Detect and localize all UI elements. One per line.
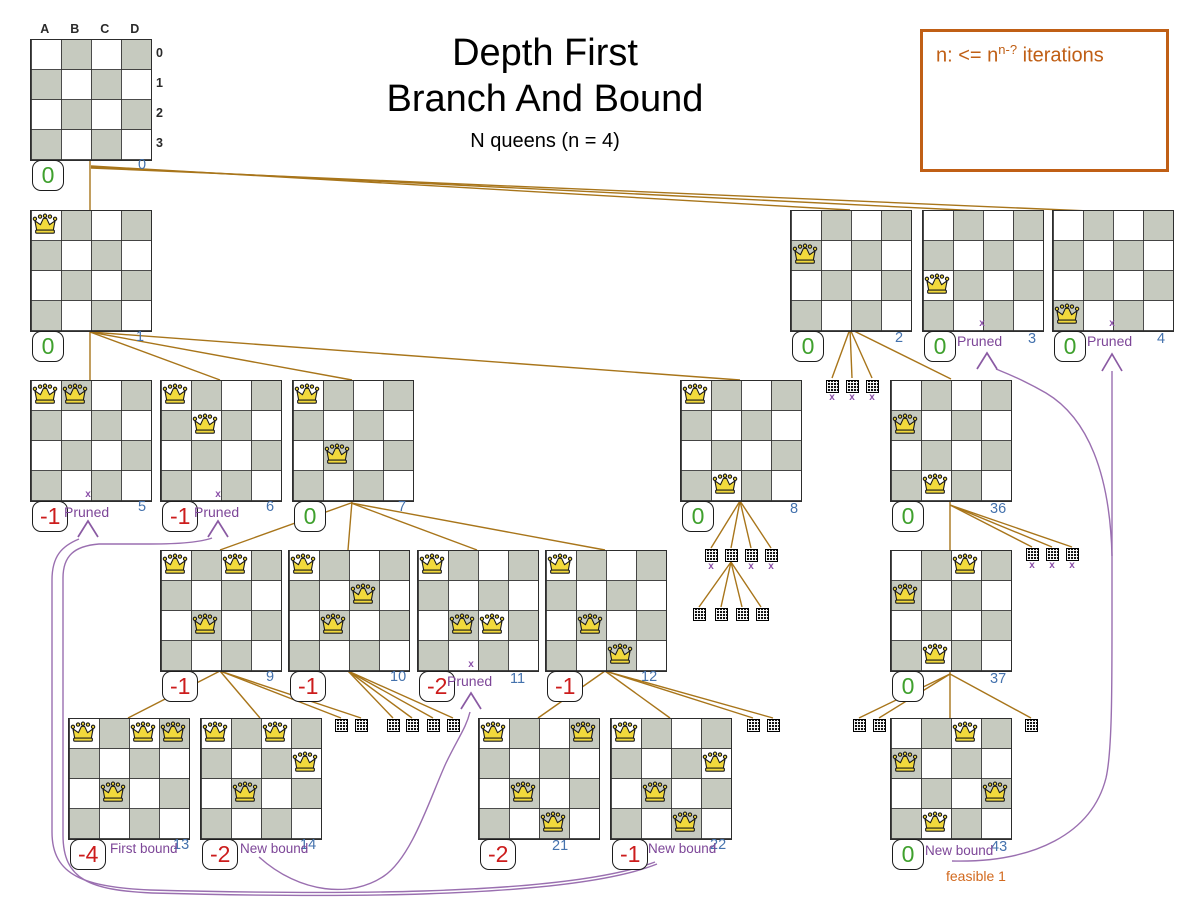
- queen-crown-glyph: [892, 583, 918, 605]
- mini-pruned-x-mark: x: [748, 561, 754, 572]
- pruned-x-mark-node-5: x: [85, 489, 91, 500]
- queen-crown-glyph: [682, 383, 708, 405]
- queen-crown-glyph: [952, 721, 978, 743]
- queen-piece: [32, 213, 58, 235]
- queen-piece: [480, 721, 506, 743]
- curve-newbound43-pruned3: [996, 369, 1112, 556]
- queen-piece: [100, 781, 126, 803]
- queen-piece: [510, 781, 536, 803]
- edge-mini-sub: [731, 562, 742, 607]
- score-badge-node-6: -1: [162, 501, 198, 532]
- bound-label-node-13: First bound: [110, 841, 178, 856]
- queen-piece: [32, 383, 58, 405]
- feasible-label-node-43: feasible 1: [946, 868, 1006, 884]
- edge-36-mini: [950, 505, 1072, 547]
- queen-piece: [922, 473, 948, 495]
- queen-crown-glyph: [192, 613, 218, 635]
- score-badge-node-3: 0: [924, 331, 956, 362]
- queen-crown-glyph: [510, 781, 536, 803]
- title-subtitle: N queens (n = 4): [245, 128, 845, 154]
- score-badge-node-8: 0: [682, 501, 714, 532]
- mini-board-icon: [747, 719, 760, 732]
- queen-piece: [192, 613, 218, 635]
- title-line-2: Branch And Bound: [245, 76, 845, 122]
- queen-crown-glyph: [612, 721, 638, 743]
- queen-piece: [672, 811, 698, 833]
- node-number-4: 4: [1157, 331, 1165, 347]
- edge-8-mini: [740, 501, 771, 548]
- queen-piece: [162, 553, 188, 575]
- row-label-1: 1: [156, 76, 163, 90]
- queen-crown-glyph: [32, 383, 58, 405]
- queen-piece: [547, 553, 573, 575]
- mini-pruned-x-mark: x: [849, 392, 855, 403]
- queen-crown-glyph: [892, 413, 918, 435]
- score-badge-node-21: -2: [480, 839, 516, 870]
- edge-10-mini: [348, 671, 393, 718]
- bound-label-node-14: New bound: [240, 841, 308, 856]
- queen-crown-glyph: [480, 721, 506, 743]
- queen-piece: [702, 751, 728, 773]
- node-number-8: 8: [790, 501, 798, 517]
- mini-board-icon: [853, 719, 866, 732]
- queen-piece: [350, 583, 376, 605]
- queen-crown-glyph: [292, 751, 318, 773]
- node-number-43: 43: [991, 839, 1007, 855]
- queen-crown-glyph: [892, 751, 918, 773]
- queen-piece: [290, 553, 316, 575]
- score-badge-node-22: -1: [612, 839, 648, 870]
- chessboard-node-36: [890, 380, 1012, 502]
- queen-crown-glyph: [922, 811, 948, 833]
- edge-1-7: [90, 332, 352, 380]
- row-label-0: 0: [156, 46, 163, 60]
- queen-piece: [540, 811, 566, 833]
- queen-piece: [952, 553, 978, 575]
- queen-piece: [202, 721, 228, 743]
- chessboard-node-0: [30, 39, 152, 161]
- queen-crown-glyph: [952, 553, 978, 575]
- row-label-3: 3: [156, 136, 163, 150]
- queen-crown-glyph: [130, 721, 156, 743]
- row-label-2: 2: [156, 106, 163, 120]
- queen-piece: [70, 721, 96, 743]
- queen-piece: [612, 721, 638, 743]
- queen-crown-glyph: [294, 383, 320, 405]
- edge-7-9: [220, 503, 351, 550]
- node-number-37: 37: [990, 671, 1006, 687]
- chessboard-node-3: [922, 210, 1044, 332]
- pruned-x-mark-node-3: x: [979, 318, 985, 329]
- score-badge-node-7: 0: [294, 501, 326, 532]
- node-number-10: 10: [390, 669, 406, 685]
- edge-12-mini: [605, 671, 773, 718]
- score-badge-node-1: 0: [32, 331, 64, 362]
- queen-crown-glyph: [922, 643, 948, 665]
- edge-mini-sub: [731, 562, 761, 607]
- queen-piece: [1054, 303, 1080, 325]
- queen-crown-glyph: [70, 721, 96, 743]
- score-badge-node-9: -1: [162, 671, 198, 702]
- arrowhead-pruned3: [977, 353, 997, 369]
- mini-board-icon: [756, 608, 769, 621]
- mini-board-icon: [387, 719, 400, 732]
- queen-crown-glyph: [232, 781, 258, 803]
- arrowhead-pruned11: [461, 693, 481, 709]
- queen-piece: [292, 751, 318, 773]
- node-number-5: 5: [138, 499, 146, 515]
- mini-pruned-x-mark: x: [708, 561, 714, 572]
- edge-12-22: [605, 671, 670, 718]
- queen-piece: [577, 613, 603, 635]
- column-label-D: D: [130, 22, 140, 36]
- edge-7-12: [351, 503, 605, 550]
- pruned-label-node-6: Pruned: [194, 504, 239, 520]
- mini-pruned-x-mark: x: [869, 392, 875, 403]
- queen-crown-glyph: [290, 553, 316, 575]
- queen-crown-glyph: [162, 553, 188, 575]
- mini-board-icon: [447, 719, 460, 732]
- queen-piece: [607, 643, 633, 665]
- node-number-3: 3: [1028, 331, 1036, 347]
- edge-7-10: [348, 501, 352, 550]
- queen-piece: [162, 383, 188, 405]
- queen-crown-glyph: [160, 721, 186, 743]
- score-badge-node-2: 0: [792, 331, 824, 362]
- queen-crown-glyph: [192, 413, 218, 435]
- mini-pruned-x-mark: x: [829, 392, 835, 403]
- queen-crown-glyph: [350, 583, 376, 605]
- mini-board-icon: [406, 719, 419, 732]
- queen-piece: [712, 473, 738, 495]
- edge-2-mini: [850, 329, 872, 378]
- iterations-legend-box: n: <= nn-? iterations: [920, 29, 1169, 172]
- queen-crown-glyph: [1054, 303, 1080, 325]
- mini-board-icon: [736, 608, 749, 621]
- bound-label-node-43: New bound: [925, 843, 993, 858]
- queen-crown-glyph: [162, 383, 188, 405]
- queen-piece: [642, 781, 668, 803]
- score-badge-node-13: -4: [70, 839, 106, 870]
- mini-board-icon: [335, 719, 348, 732]
- mini-pruned-x-mark: x: [1049, 560, 1055, 571]
- mini-board-icon: [725, 549, 738, 562]
- queen-crown-glyph: [922, 473, 948, 495]
- mini-pruned-x-mark: x: [768, 561, 774, 572]
- score-badge-node-12: -1: [547, 671, 583, 702]
- queen-piece: [924, 273, 950, 295]
- score-badge-node-36: 0: [892, 501, 924, 532]
- queen-piece: [792, 243, 818, 265]
- edge-2-mini: [832, 329, 850, 378]
- queen-piece: [262, 721, 288, 743]
- score-badge-node-10: -1: [290, 671, 326, 702]
- queen-crown-glyph: [982, 781, 1008, 803]
- queen-piece: [320, 613, 346, 635]
- arrowhead-pruned4: [1102, 354, 1122, 371]
- queen-crown-glyph: [320, 613, 346, 635]
- queen-crown-glyph: [924, 273, 950, 295]
- queen-piece: [922, 643, 948, 665]
- edge-1-6: [90, 332, 220, 380]
- queen-piece: [952, 721, 978, 743]
- queen-piece: [922, 811, 948, 833]
- score-badge-node-43: 0: [892, 839, 924, 870]
- mini-board-icon: [693, 608, 706, 621]
- queen-piece: [160, 721, 186, 743]
- pruned-label-node-3: Pruned: [957, 333, 1002, 349]
- queen-crown-glyph: [792, 243, 818, 265]
- score-badge-node-37: 0: [892, 671, 924, 702]
- queen-crown-glyph: [62, 383, 88, 405]
- queen-crown-glyph: [577, 613, 603, 635]
- queen-crown-glyph: [32, 213, 58, 235]
- queen-piece: [232, 781, 258, 803]
- queen-crown-glyph: [540, 811, 566, 833]
- node-number-2: 2: [895, 330, 903, 346]
- queen-piece: [130, 721, 156, 743]
- queen-crown-glyph: [607, 643, 633, 665]
- node-number-7: 7: [398, 499, 406, 515]
- queen-piece: [294, 383, 320, 405]
- queen-piece: [324, 443, 350, 465]
- queen-piece: [62, 383, 88, 405]
- queen-crown-glyph: [570, 721, 596, 743]
- queen-piece: [419, 553, 445, 575]
- queen-piece: [892, 583, 918, 605]
- node-number-0: 0: [138, 157, 146, 173]
- mini-pruned-x-mark: x: [1029, 560, 1035, 571]
- arrowhead-pruned5: [78, 521, 98, 537]
- node-number-21: 21: [552, 838, 568, 854]
- pruned-x-mark-node-11: x: [468, 659, 474, 670]
- queen-piece: [479, 613, 505, 635]
- formula-suffix: iterations: [1017, 45, 1104, 67]
- node-number-11: 11: [510, 671, 525, 687]
- queen-piece: [892, 751, 918, 773]
- queen-crown-glyph: [100, 781, 126, 803]
- edge-12-mini: [605, 671, 753, 718]
- mini-board-icon: [1025, 719, 1038, 732]
- pruned-x-mark-node-4: x: [1109, 318, 1115, 329]
- pruned-label-node-11: Pruned: [447, 673, 492, 689]
- formula-superscript: n-?: [998, 42, 1017, 57]
- queen-piece: [449, 613, 475, 635]
- chessboard-node-2: [790, 210, 912, 332]
- edge-1-8: [90, 332, 740, 380]
- node-number-12: 12: [641, 669, 657, 685]
- queen-crown-glyph: [449, 613, 475, 635]
- pruned-x-mark-node-6: x: [215, 489, 221, 500]
- edge-2-mini: [850, 329, 852, 378]
- queen-piece: [222, 553, 248, 575]
- title-line-1: Depth First: [245, 30, 845, 76]
- queen-crown-glyph: [642, 781, 668, 803]
- queen-crown-glyph: [479, 613, 505, 635]
- pruned-label-node-5: Pruned: [64, 504, 109, 520]
- node-number-1: 1: [136, 329, 144, 345]
- queen-crown-glyph: [202, 721, 228, 743]
- queen-piece: [570, 721, 596, 743]
- diagram-title-block: Depth First Branch And Bound N queens (n…: [245, 30, 845, 154]
- score-badge-node-4: 0: [1054, 331, 1086, 362]
- mini-board-icon: [873, 719, 886, 732]
- mini-board-icon: [767, 719, 780, 732]
- queen-piece: [982, 781, 1008, 803]
- edge-7-11: [351, 503, 477, 550]
- queen-crown-glyph: [262, 721, 288, 743]
- score-badge-node-0: 0: [32, 160, 64, 191]
- arrowhead-pruned6: [208, 521, 228, 537]
- queen-piece: [892, 413, 918, 435]
- node-number-9: 9: [266, 669, 274, 685]
- column-label-B: B: [70, 22, 80, 36]
- mini-board-icon: [427, 719, 440, 732]
- score-badge-node-14: -2: [202, 839, 238, 870]
- chessboard-node-43: [890, 718, 1012, 840]
- column-label-C: C: [100, 22, 110, 36]
- queen-crown-glyph: [547, 553, 573, 575]
- column-label-A: A: [40, 22, 50, 36]
- formula-prefix: n: <= n: [936, 45, 998, 67]
- edge-0-4: [91, 168, 1112, 212]
- queen-crown-glyph: [222, 553, 248, 575]
- queen-crown-glyph: [672, 811, 698, 833]
- queen-crown-glyph: [419, 553, 445, 575]
- iterations-formula: n: <= nn-? iterations: [936, 42, 1166, 68]
- queen-crown-glyph: [702, 751, 728, 773]
- pruned-label-node-4: Pruned: [1087, 333, 1132, 349]
- node-number-6: 6: [266, 499, 274, 515]
- queen-piece: [682, 383, 708, 405]
- queen-piece: [192, 413, 218, 435]
- branch-and-bound-diagram: Depth First Branch And Bound N queens (n…: [0, 0, 1200, 900]
- mini-board-icon: [715, 608, 728, 621]
- edge-8-mini: [740, 501, 751, 548]
- score-badge-node-5: -1: [32, 501, 68, 532]
- mini-pruned-x-mark: x: [1069, 560, 1075, 571]
- chessboard-node-37: [890, 550, 1012, 672]
- mini-board-icon: [355, 719, 368, 732]
- bound-label-node-22: New bound: [648, 841, 716, 856]
- queen-crown-glyph: [712, 473, 738, 495]
- node-number-36: 36: [990, 501, 1006, 517]
- queen-crown-glyph: [324, 443, 350, 465]
